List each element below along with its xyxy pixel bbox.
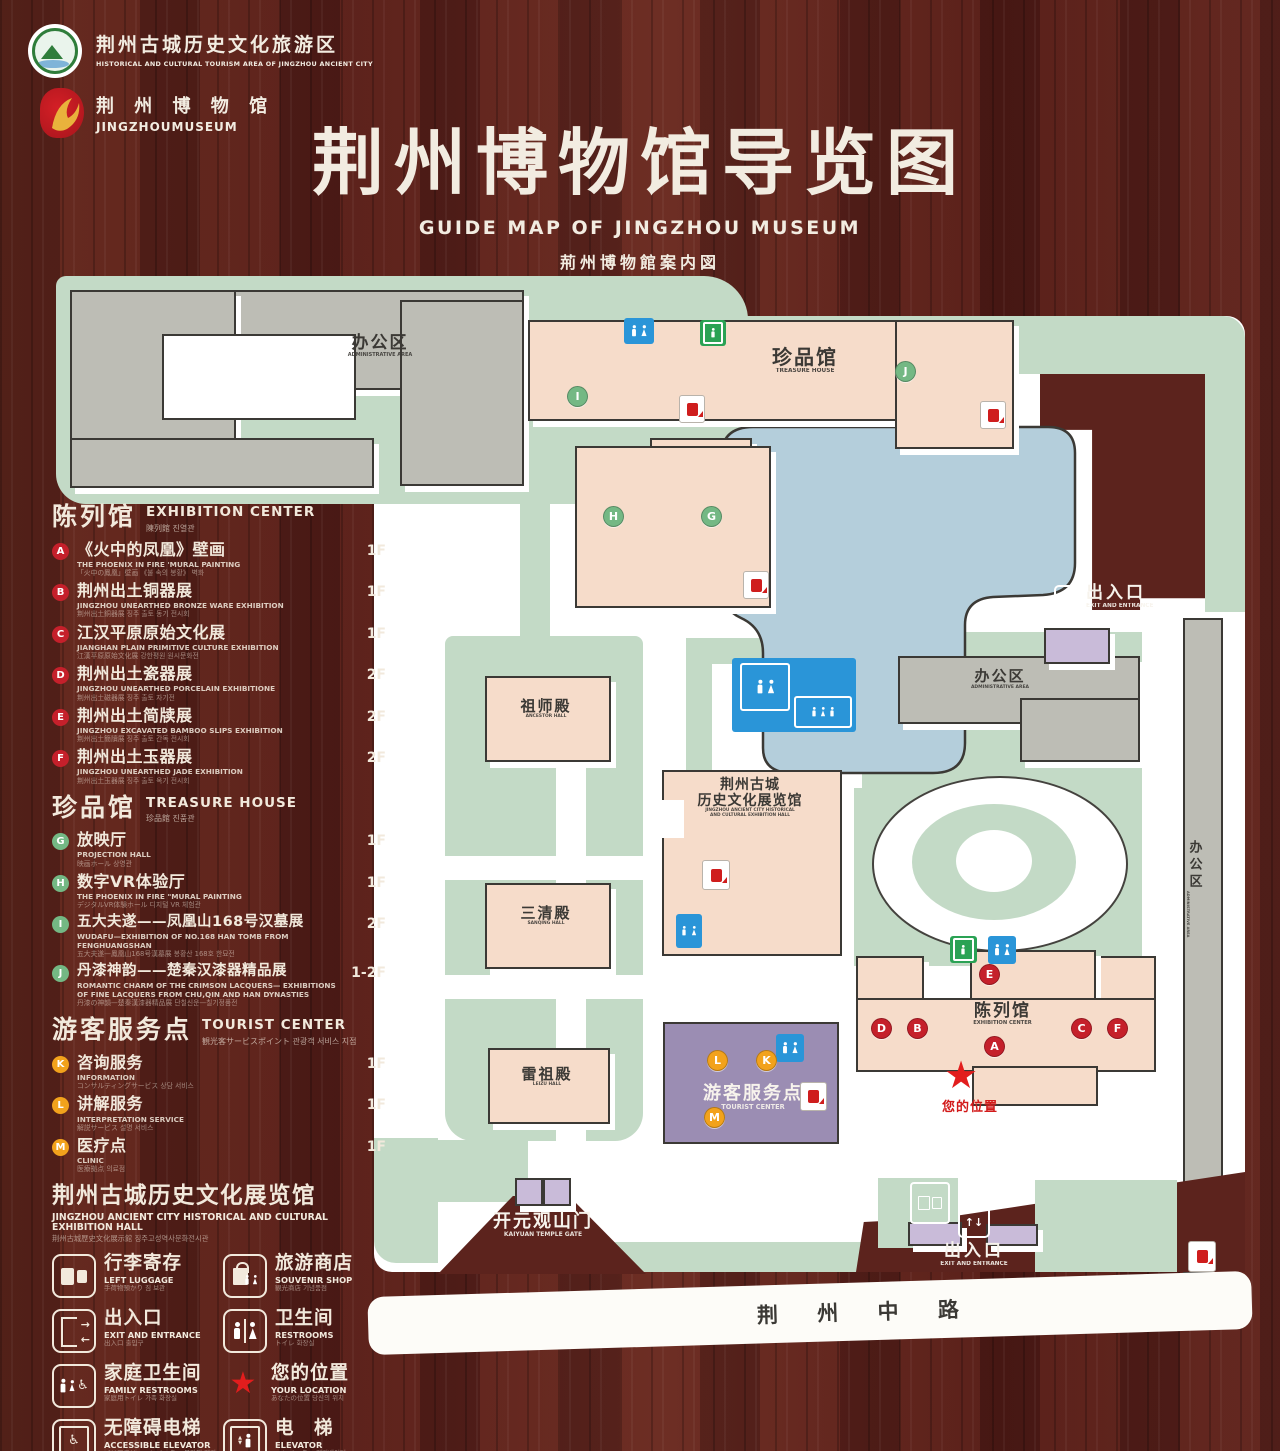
admin-nw-building-foot [70, 438, 374, 488]
page-title-jp: 荊州博物館案内図 [240, 249, 1040, 273]
item-marker: E [52, 709, 69, 726]
hall-title-sub: 荆州古城歴史文化展示館 징주고성역사문화전시관 [52, 1235, 388, 1243]
south-exit-label: 出入口 EXIT AND ENTRANCE [928, 1242, 1020, 1268]
fire-hydrant-icon [1188, 1241, 1216, 1272]
guide-map-board: 荆州古城历史文化旅游区 HISTORICAL AND CULTURAL TOUR… [0, 0, 1280, 1451]
floor-label: 2F [367, 709, 386, 725]
section-title-sub: 陳列館 진열관 [146, 523, 315, 534]
legend-item: L 讲解服务INTERPRETATION SERVICE解説サービス 설명 서비… [52, 1096, 388, 1132]
fire-hydrant-icon [743, 571, 769, 599]
courtyard-path-1 [445, 856, 643, 880]
legend-item: K 咨询服务INFORMATIONコンサルティングサービス 상담 서비스 1F [52, 1055, 388, 1091]
treasure-house-label: 珍品馆 TREASURE HOUSE [740, 346, 870, 375]
item-marker: I [52, 916, 69, 933]
exit-entrance-icon: → ← [52, 1309, 96, 1353]
marker-B: B [907, 1018, 928, 1039]
family-restroom-icon [794, 696, 852, 728]
courtyard-path-2 [445, 975, 643, 999]
elevator-icon [700, 320, 726, 346]
item-marker: B [52, 584, 69, 601]
marker-H: H [603, 506, 624, 527]
restroom-icon [676, 914, 702, 948]
legend-item: E 荆州出土简牍展JINGZHOU EXCAVATED BAMBOO SLIPS… [52, 708, 388, 744]
east-exit-label: 出入口 EXIT AND ENTRANCE [1086, 584, 1182, 610]
sanqing-hall-label: 三清殿 SANQING HALL [487, 905, 605, 927]
legend-item: H 数字VR体验厅THE PHOENIX IN FIRE "MURAL PAIN… [52, 874, 388, 910]
treasure-house-annex [575, 446, 771, 608]
title-block: 荆州博物馆导览图 GUIDE MAP OF JINGZHOU MUSEUM 荊州… [240, 104, 1040, 298]
item-marker: L [52, 1097, 69, 1114]
restroom-family-panel [732, 658, 856, 732]
item-marker: M [52, 1139, 69, 1156]
marker-A: A [984, 1036, 1005, 1057]
history-hall-label: 荆州古城 历史文化展览馆 JINGZHOU ANCIENT CITY HISTO… [668, 778, 832, 819]
legend-item: C 江汉平原原始文化展JIANGHAN PLAIN PRIMITIVE CULT… [52, 625, 388, 661]
souvenir-shop-icon [223, 1254, 267, 1298]
section-title-sub: 珍品館 진품관 [146, 813, 297, 824]
up-down-arrows-icon: ↑↓ [958, 1206, 990, 1238]
green-zone-northeast [1205, 372, 1245, 612]
accessible-elevator-icon: ♿ [52, 1419, 96, 1451]
marker-K: K [756, 1050, 777, 1071]
section-title-cn: 游客服务点 [52, 1017, 192, 1042]
marker-J: J [895, 361, 916, 382]
your-location-label: 您的位置 [922, 1096, 1018, 1115]
legend-sidebar: 陈列馆 EXHIBITION CENTER 陳列館 진열관 A 《火中的凤凰》壁… [52, 494, 388, 1451]
section-title-sub: 観光客サービスポイント 관광객 서비스 지점 [202, 1036, 357, 1047]
restroom-icon [740, 663, 790, 711]
your-location-icon: ★ [223, 1364, 263, 1404]
elevator-icon: ▲▼ [223, 1419, 267, 1451]
fire-hydrant-icon [800, 1082, 827, 1111]
restroom-icon [776, 1034, 804, 1062]
restrooms-icon [223, 1309, 267, 1353]
kaiyuan-gate-label: 开元观山门 KAIYUAN TEMPLE GATE [448, 1212, 638, 1239]
section-title-en: TREASURE HOUSE [146, 797, 297, 811]
admin-nw-building-rightwing [400, 300, 524, 486]
tourism-area-name-en: HISTORICAL AND CULTURAL TOURISM AREA OF … [96, 60, 373, 68]
marker-M: M [704, 1107, 725, 1128]
legend-item: A 《火中的凤凰》壁画THE PHOENIX IN FIRE 'MURAL PA… [52, 542, 388, 578]
item-marker: J [52, 965, 69, 982]
section-title-cn: 珍品馆 [52, 795, 136, 820]
marker-E: E [979, 964, 1000, 985]
restroom-icon [988, 936, 1016, 964]
treasure-house-right-arm [895, 320, 1014, 449]
marker-L: L [707, 1050, 728, 1071]
floor-label: 1F [367, 1139, 386, 1155]
floor-label: 1F [367, 1097, 386, 1113]
item-marker: C [52, 626, 69, 643]
facility-item: ▲▼ 电 梯ELEVATORエレベーター 엘리베이터 [223, 1419, 388, 1451]
marker-G: G [701, 506, 722, 527]
marker-I: I [567, 386, 588, 407]
fire-hydrant-icon [702, 860, 730, 890]
legend-item: I 五大夫遂——凤凰山168号汉墓展WUDAFU—EXHIBITION OF N… [52, 915, 388, 958]
section-title-en: TOURIST CENTER [202, 1019, 357, 1033]
jingzhou-museum-logo [40, 88, 86, 140]
road-label: 荆 州 中 路 [757, 1293, 976, 1329]
green-southeast-2 [1035, 1180, 1177, 1272]
tourist-center-label: 游客服务点 TOURIST CENTER [688, 1084, 818, 1112]
fire-hydrant-icon [980, 401, 1006, 429]
left-luggage-icon [52, 1254, 96, 1298]
floor-label: 1F [367, 833, 386, 849]
facility-item: 卫生间RESTROOMSトイレ 화장실 [223, 1309, 388, 1353]
floor-label: 1F [367, 626, 386, 642]
item-marker: K [52, 1056, 69, 1073]
admin-nw-label: 办公区 ADMINISTRATIVE AREA [300, 334, 460, 359]
facility-legend: 行李寄存LEFT LUGGAGE手荷物預かり 짐 보관 旅游商店SOUVENIR… [52, 1254, 388, 1451]
facility-item: 旅游商店SOUVENIR SHOP観光商店 기념품점 [223, 1254, 388, 1298]
legend-item: G 放映厅PROJECTION HALL映画ホール 상영관 1F [52, 832, 388, 868]
marker-D: D [871, 1018, 892, 1039]
kaiyuan-gate-right [543, 1178, 571, 1206]
exhibition-center-label: 陈列馆 EXHIBITION CENTER [940, 1002, 1065, 1027]
exit-entrance-icon: →← [1054, 585, 1084, 615]
item-marker: A [52, 543, 69, 560]
ancestor-hall-label: 祖师殿 ANCESTOR HALL [487, 698, 605, 720]
tourism-area-logo [28, 24, 86, 82]
legend-item: M 医疗点CLINIC医療拠点 의료점 1F [52, 1138, 388, 1174]
east-gate-building [1044, 628, 1110, 664]
family-restrooms-icon: ♿ [52, 1364, 96, 1408]
item-marker: H [52, 875, 69, 892]
admin-e-building-arm [1020, 698, 1140, 762]
marker-C: C [1071, 1018, 1092, 1039]
facility-item: → ← 出入口EXIT AND ENTRANCE出入口 출입구 [52, 1309, 217, 1353]
section-tourist-center: 游客服务点 TOURIST CENTER 観光客サービスポイント 관광객 서비스… [52, 1017, 388, 1047]
leizu-hall-label: 雷祖殿 LEIZU HALL [490, 1066, 604, 1088]
kaiyuan-gate-left [515, 1178, 543, 1206]
floor-label: 2F [367, 667, 386, 683]
admin-far-east-label: 办公区 ADMINISTRATIVE AREA [1186, 840, 1216, 1040]
facility-item: ★ 您的位置YOUR LOCATIONあなたの位置 당신의 위치 [223, 1364, 388, 1408]
legend-item: F 荆州出土玉器展JINGZHOU UNEARTHED JADE EXHIBIT… [52, 749, 388, 785]
floor-label: 2F [367, 916, 386, 932]
legend-item: D 荆州出土瓷器展JINGZHOU UNEARTHED PORCELAIN EX… [52, 666, 388, 702]
item-marker: D [52, 667, 69, 684]
hall-title-en: JINGZHOU ANCIENT CITY HISTORICAL AND CUL… [52, 1213, 388, 1233]
page-title-en: GUIDE MAP OF JINGZHOU MUSEUM [240, 217, 1040, 239]
tourism-area-name: 荆州古城历史文化旅游区 [96, 30, 373, 57]
marker-F: F [1107, 1018, 1128, 1039]
section-title-cn: 陈列馆 [52, 504, 136, 529]
section-exhibition-center: 陈列馆 EXHIBITION CENTER 陳列館 진열관 [52, 504, 388, 534]
section-treasure-house: 珍品馆 TREASURE HOUSE 珍品館 진품관 [52, 795, 388, 825]
legend-item: J 丹漆神韵——楚秦汉漆器精品展ROMANTIC CHARM OF THE CR… [52, 964, 388, 1007]
facility-item: ♿ 无障碍电梯ACCESSIBLE ELEVATORバリアフリーエレベーター 무… [52, 1419, 217, 1451]
item-marker: F [52, 750, 69, 767]
left-luggage-icon [910, 1182, 950, 1224]
facility-item: 行李寄存LEFT LUGGAGE手荷物預かり 짐 보관 [52, 1254, 217, 1298]
page-title: 荆州博物馆导览图 [240, 104, 1040, 209]
floor-label: 1F [367, 1056, 386, 1072]
section-history-hall: 荆州古城历史文化展览馆 JINGZHOU ANCIENT CITY HISTOR… [52, 1185, 388, 1242]
road-jingzhou-middle: 荆 州 中 路 [367, 1271, 1252, 1355]
tourism-area-logo-text: 荆州古城历史文化旅游区 HISTORICAL AND CULTURAL TOUR… [96, 30, 373, 68]
section-title-en: EXHIBITION CENTER [146, 506, 315, 520]
admin-e-label: 办公区 ADMINISTRATIVE AREA [940, 668, 1060, 690]
floor-label: 1F [367, 584, 386, 600]
garden-pond [956, 830, 1032, 892]
star-icon: ★ [944, 1056, 978, 1094]
fire-hydrant-icon [679, 395, 705, 423]
legend-item: B 荆州出土铜器展JINGZHOU UNEARTHED BRONZE WARE … [52, 583, 388, 619]
floor-label: 1-2F [351, 965, 386, 981]
floor-label: 1F [367, 875, 386, 891]
facility-item: ♿ 家庭卫生间FAMILY RESTROOMS家庭用トイレ 가족 화장실 [52, 1364, 217, 1408]
floor-label: 1F [367, 543, 386, 559]
phoenix-glyph [40, 88, 84, 138]
elevator-icon [950, 936, 977, 963]
hall-title-cn: 荆州古城历史文化展览馆 [52, 1185, 388, 1209]
floor-label: 2F [367, 750, 386, 766]
item-marker: G [52, 833, 69, 850]
restroom-icon [624, 318, 654, 344]
